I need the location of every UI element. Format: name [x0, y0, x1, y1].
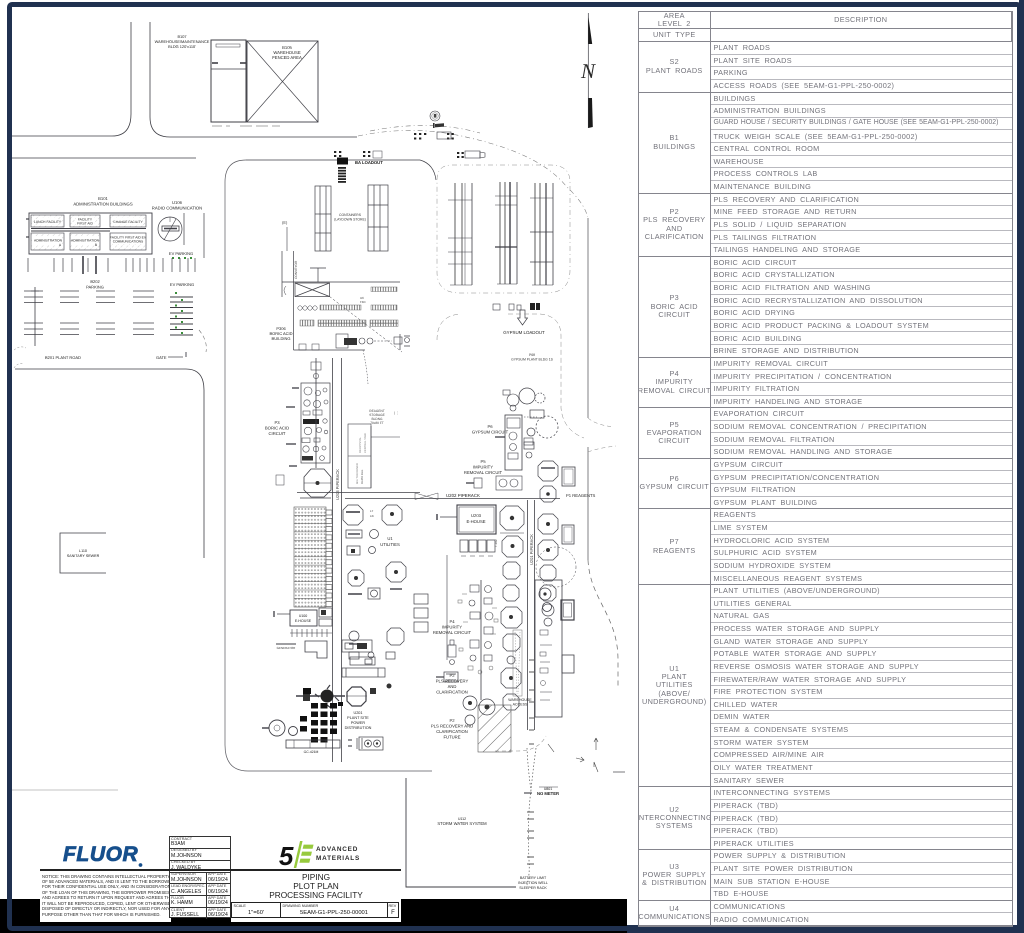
svg-text:CIRCUIT: CIRCUIT — [269, 431, 286, 436]
svg-text:STORM WATER SYSTEM: STORM WATER SYSTEM — [437, 821, 487, 826]
svg-text:LB: LB — [370, 514, 374, 518]
svg-text:IMPURITY: IMPURITY — [442, 625, 462, 630]
svg-text:P2: P2 — [449, 718, 455, 723]
svg-text:L110: L110 — [79, 549, 87, 553]
svg-text:T-102: T-102 — [494, 539, 498, 547]
svg-text:COMMUNICATIONS: COMMUNICATIONS — [113, 240, 144, 244]
svg-text:(LAYDOWN STORE): (LAYDOWN STORE) — [334, 218, 366, 222]
svg-text:REMOVAL CIRCUIT: REMOVAL CIRCUIT — [433, 630, 472, 635]
svg-text:INJECTION WELL: INJECTION WELL — [518, 881, 548, 885]
svg-text:AND: AND — [448, 684, 457, 689]
svg-text:U201 PIPERACK: U201 PIPERACK — [529, 534, 534, 565]
svg-text:CENTRAL TANK: CENTRAL TANK — [364, 433, 367, 453]
svg-text:P6: P6 — [487, 424, 493, 429]
svg-text:POWER: POWER — [351, 721, 366, 725]
svg-text:SLEEPER RACK: SLEEPER RACK — [519, 886, 547, 890]
svg-text:CLARIFICATION: CLARIFICATION — [436, 690, 468, 695]
svg-text:GENERATOR: GENERATOR — [277, 646, 297, 650]
svg-text:SANITARY SEWER: SANITARY SEWER — [67, 554, 100, 558]
svg-text:P1 REAGENTS: P1 REAGENTS — [566, 493, 596, 498]
svg-text:P4: P4 — [449, 619, 455, 624]
svg-text:PLANT SITE: PLANT SITE — [347, 716, 369, 720]
svg-text:MIA THICKENER: MIA THICKENER — [356, 463, 359, 484]
svg-text:U106: U106 — [172, 200, 183, 205]
svg-text:E-HOUSE: E-HOUSE — [295, 619, 312, 623]
svg-text:BA LOADOUT: BA LOADOUT — [355, 160, 383, 165]
svg-text:GYPSUM LOADOUT: GYPSUM LOADOUT — [503, 330, 545, 335]
svg-text:FUTURE: FUTURE — [444, 735, 461, 740]
svg-text:RECRYSTAL: RECRYSTAL — [359, 437, 362, 453]
svg-text:E-HOUSE: E-HOUSE — [466, 519, 485, 524]
svg-text:CHANGE FACILITY: CHANGE FACILITY — [113, 220, 143, 224]
svg-text:WAREHOUSE: WAREHOUSE — [508, 698, 532, 702]
svg-text:U201: U201 — [353, 711, 362, 715]
svg-text:CLARIFICATION: CLARIFICATION — [436, 729, 468, 734]
svg-text:REMOVAL CIRCUIT: REMOVAL CIRCUIT — [464, 470, 503, 475]
svg-text:RAPID BLG: RAPID BLG — [361, 470, 364, 484]
svg-text:CONVEYOR: CONVEYOR — [294, 260, 298, 279]
svg-text:ACCESS: ACCESS — [513, 703, 528, 707]
svg-text:P5: P5 — [480, 459, 486, 464]
svg-text:DISTRIBUTION: DISTRIBUTION — [345, 726, 372, 730]
svg-text:EV PARKING: EV PARKING — [169, 251, 193, 256]
svg-text:PARKING: PARKING — [86, 285, 104, 290]
svg-text:70x80 FT: 70x80 FT — [370, 421, 384, 425]
svg-text:FB4: FB4 — [360, 300, 366, 304]
svg-text:(E): (E) — [282, 220, 288, 225]
svg-text:GYPSUM PLANT BLDG 1S: GYPSUM PLANT BLDG 1S — [511, 358, 554, 362]
svg-text:IMPURITY: IMPURITY — [473, 465, 493, 470]
svg-text:GYPSUM CIRCUIT: GYPSUM CIRCUIT — [472, 430, 509, 435]
svg-text:BATTERY LIMIT: BATTERY LIMIT — [520, 876, 547, 880]
svg-text:PLS RECOVERY AND: PLS RECOVERY AND — [431, 724, 473, 729]
svg-text:BLDG 120'x110': BLDG 120'x110' — [168, 44, 196, 49]
svg-text:LT: LT — [370, 509, 373, 513]
svg-text:EV PARKING: EV PARKING — [170, 282, 194, 287]
svg-text:B201 PLANT ROAD: B201 PLANT ROAD — [45, 355, 81, 360]
svg-text:P08: P08 — [529, 353, 535, 357]
svg-text:NO METER: NO METER — [537, 791, 559, 796]
svg-text:UTILITIES: UTILITIES — [380, 542, 400, 547]
svg-text:LUNCH FACILITY: LUNCH FACILITY — [34, 220, 62, 224]
svg-text:N: N — [580, 59, 596, 83]
svg-text:P3: P3 — [274, 420, 280, 425]
svg-text:BUILDING: BUILDING — [272, 336, 291, 341]
svg-text:FENCED AREA: FENCED AREA — [272, 55, 302, 60]
svg-text:U100: U100 — [299, 614, 308, 618]
svg-text:GATE: GATE — [156, 355, 167, 360]
svg-text:5: 5 — [279, 841, 294, 868]
svg-text:PLS RECOVERY: PLS RECOVERY — [436, 679, 469, 684]
svg-text:B202: B202 — [90, 279, 100, 284]
svg-text:P2: P2 — [449, 673, 455, 678]
svg-text:CONTAINERS: CONTAINERS — [339, 213, 362, 217]
svg-text:ADMINISTRATION BUILDINGS: ADMINISTRATION BUILDINGS — [73, 202, 132, 207]
svg-text:U1: U1 — [387, 536, 393, 541]
svg-text:RADIO COMMUNICATION: RADIO COMMUNICATION — [152, 206, 202, 211]
svg-text:ADMINISTRATION: ADMINISTRATION — [34, 239, 63, 243]
svg-text:U203: U203 — [471, 513, 482, 518]
svg-text:U203 PIPERACK: U203 PIPERACK — [335, 469, 340, 500]
svg-text:B101: B101 — [98, 196, 108, 201]
svg-text:GC-421M: GC-421M — [304, 750, 319, 754]
svg-text:| ⋮: | ⋮ — [394, 411, 399, 415]
svg-text:BORIC ACID: BORIC ACID — [265, 426, 289, 431]
svg-text:ADMINISTRATION: ADMINISTRATION — [71, 239, 100, 243]
svg-text:FIRST AID: FIRST AID — [77, 222, 93, 226]
svg-text:U202 PIPERACK: U202 PIPERACK — [446, 493, 480, 498]
